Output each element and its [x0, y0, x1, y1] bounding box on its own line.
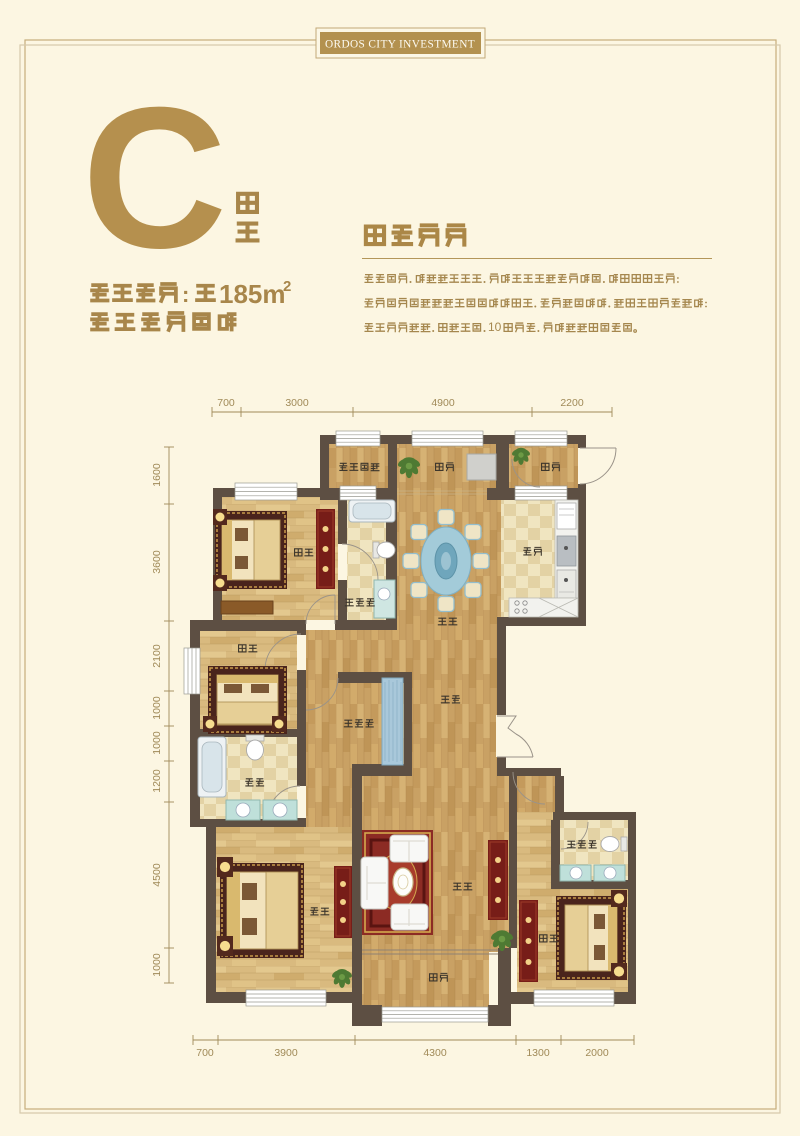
svg-text:185m: 185m [219, 279, 286, 309]
svg-text:3900: 3900 [274, 1047, 298, 1059]
svg-text:4300: 4300 [423, 1047, 447, 1059]
svg-text:2100: 2100 [151, 644, 163, 668]
svg-text:1200: 1200 [151, 769, 163, 793]
svg-text:4500: 4500 [151, 863, 163, 887]
svg-text:2: 2 [283, 278, 291, 295]
svg-text:ORDOS CITY INVESTMENT: ORDOS CITY INVESTMENT [325, 39, 475, 51]
svg-text:3600: 3600 [151, 550, 163, 574]
svg-text:700: 700 [217, 397, 235, 409]
svg-text:700: 700 [196, 1047, 214, 1059]
svg-text:2000: 2000 [585, 1047, 609, 1059]
svg-text:1600: 1600 [151, 463, 163, 487]
svg-text:1000: 1000 [151, 953, 163, 977]
svg-text:1000: 1000 [151, 696, 163, 720]
svg-text::: : [182, 282, 189, 307]
svg-text:4900: 4900 [431, 397, 455, 409]
svg-text:1000: 1000 [151, 731, 163, 755]
svg-text:C: C [82, 65, 227, 290]
svg-text:10: 10 [488, 320, 502, 334]
svg-text:2200: 2200 [560, 397, 584, 409]
svg-text:1300: 1300 [526, 1047, 550, 1059]
svg-text:3000: 3000 [285, 397, 309, 409]
